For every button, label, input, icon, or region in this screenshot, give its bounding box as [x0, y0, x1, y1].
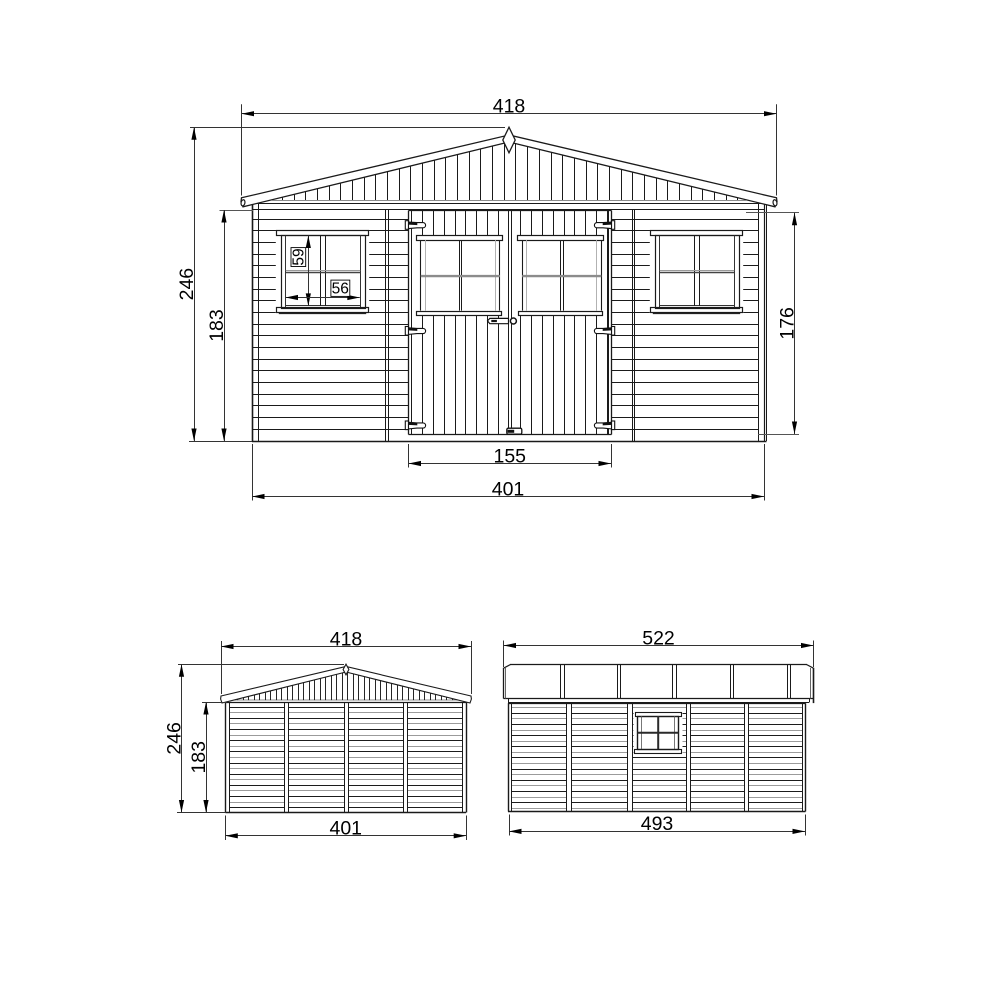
svg-text:183: 183 — [188, 741, 210, 774]
svg-text:246: 246 — [176, 268, 198, 301]
svg-text:246: 246 — [163, 722, 185, 755]
svg-text:401: 401 — [329, 818, 362, 840]
svg-text:183: 183 — [206, 309, 228, 342]
svg-text:493: 493 — [641, 813, 674, 835]
svg-text:59: 59 — [291, 248, 308, 265]
svg-text:401: 401 — [492, 478, 525, 500]
svg-text:155: 155 — [493, 445, 526, 467]
svg-text:418: 418 — [330, 628, 363, 650]
svg-text:522: 522 — [642, 627, 675, 649]
svg-text:176: 176 — [776, 307, 798, 340]
svg-text:418: 418 — [493, 96, 526, 118]
svg-text:56: 56 — [332, 281, 349, 298]
